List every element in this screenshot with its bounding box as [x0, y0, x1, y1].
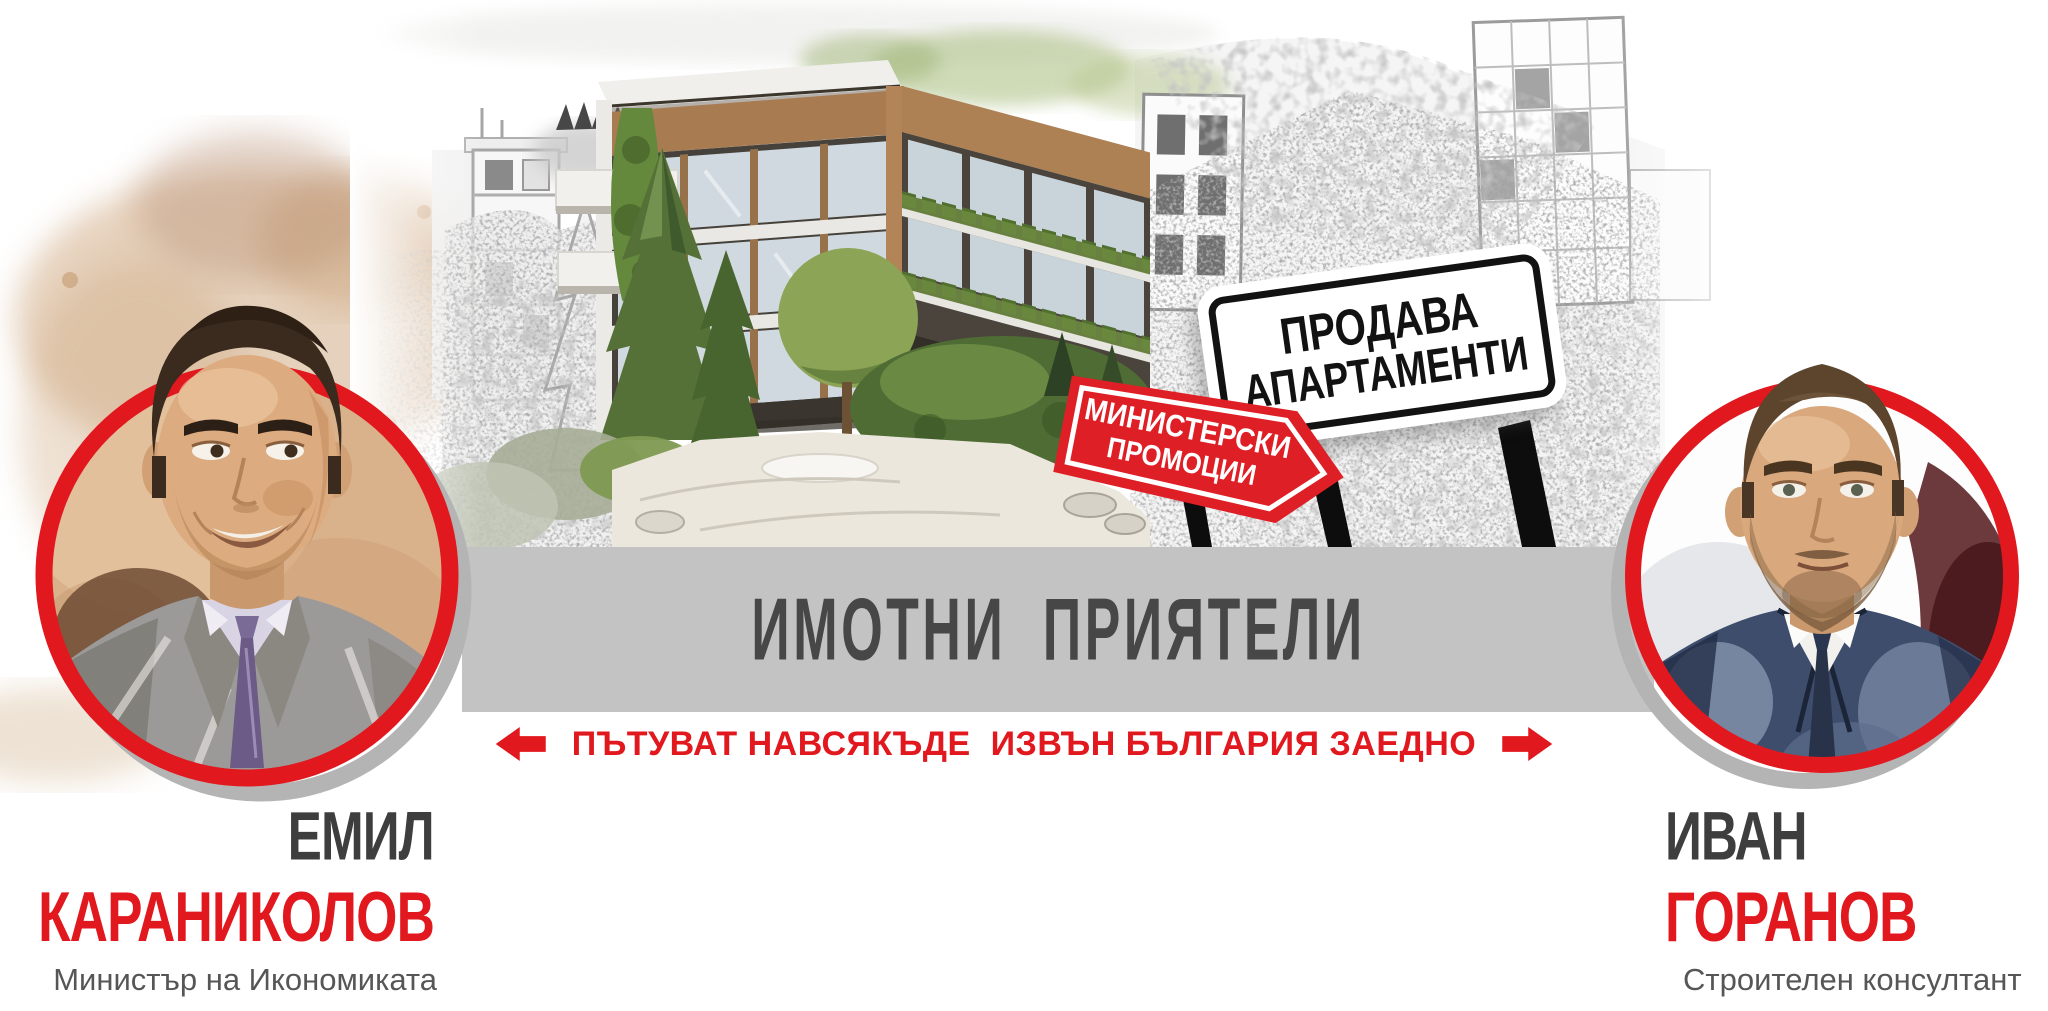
- tagline-text: ПЪТУВАТ НАВСЯКЪДЕ ИЗВЪН БЪЛГАРИЯ ЗАЕДНО: [572, 725, 1477, 764]
- fir-tips-row: [556, 100, 624, 130]
- banner-title: ИМОТНИ ПРИЯТЕЛИ: [751, 579, 1365, 680]
- person-left-last-name: КАРАНИКОЛОВ: [0, 882, 434, 943]
- sky-wash: [380, 4, 1220, 64]
- arrow-right-icon: [1502, 727, 1552, 761]
- person-left-role: Министър на Икономиката: [0, 962, 437, 998]
- person-right-last-name: ГОРАНОВ: [1665, 882, 2048, 943]
- portrait-right: [1598, 232, 2048, 812]
- title-banner: ИМОТНИ ПРИЯТЕЛИ: [462, 547, 1654, 712]
- person-right-first-name: ИВАН: [1665, 802, 2048, 856]
- person-left-first-name: ЕМИЛ: [0, 802, 434, 856]
- sketch-building-mid: [1140, 94, 1244, 311]
- apartment-building-illustration: [556, 60, 1150, 448]
- portrait-left: [0, 168, 528, 828]
- person-right-role: Строителен консултант: [1683, 962, 2048, 998]
